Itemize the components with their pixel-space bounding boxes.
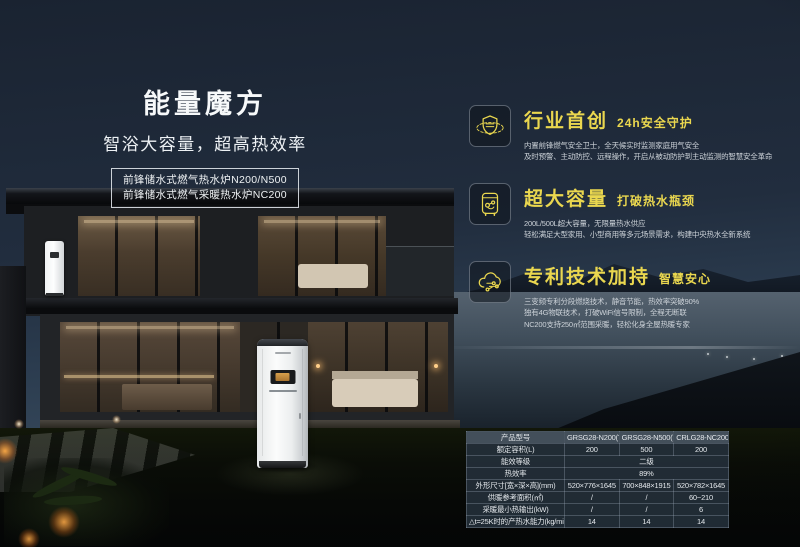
product-logo-mark bbox=[275, 352, 291, 354]
spec-value: 700×848×1915 bbox=[619, 480, 674, 492]
spec-value: 14 bbox=[619, 516, 674, 528]
mini-heater-base bbox=[46, 293, 63, 296]
window-upper-left bbox=[78, 216, 200, 296]
feature-text-line: 内置前锋燃气安全卫士，全天候实时监测家庭用气安全 bbox=[524, 140, 772, 151]
storage-tank-icon bbox=[469, 183, 511, 225]
spec-table: 产品型号 GRSG28-N200(T) GRSG28-N500(T) CRLG2… bbox=[466, 431, 729, 528]
window-lower-bedroom bbox=[308, 322, 448, 412]
spec-label: 外形尺寸[宽×深×高](mm) bbox=[467, 480, 565, 492]
feature-large-capacity: 超大容量 打破热水瓶颈 200L/500L超大容量，无限量热水供应 轻松满足大型… bbox=[469, 183, 750, 241]
spec-value: GRSG28-N500(T) bbox=[619, 432, 674, 444]
spec-row-efficiency: 热效率 89% bbox=[467, 468, 729, 480]
shore-light-dot bbox=[707, 353, 709, 355]
shield-orbit-icon bbox=[469, 105, 511, 147]
iot-cloud-icon bbox=[469, 261, 511, 303]
spec-label: 额定容积(L) bbox=[467, 444, 565, 456]
spec-value: GRSG28-N200(T) bbox=[565, 432, 620, 444]
product-base bbox=[259, 461, 306, 468]
feature-industry-first: 行业首创 24h安全守护 内置前锋燃气安全卫士，全天候实时监测家庭用气安全 及时… bbox=[469, 105, 772, 163]
spec-label: 供暖参考面积(㎡) bbox=[467, 492, 565, 504]
model-name-line: 前锋储水式燃气采暖热水炉NC200 bbox=[123, 188, 287, 203]
spec-value: 89% bbox=[565, 468, 729, 480]
feature-patent-tech: 专利技术加持 智慧安心 三变频专利分段燃烧技术，静音节能，热效率突破90% 独有… bbox=[469, 261, 711, 330]
feature-title: 行业首创 bbox=[524, 106, 608, 133]
product-body bbox=[257, 339, 308, 468]
path-light bbox=[14, 419, 24, 429]
window-kitchen bbox=[60, 322, 240, 412]
feature-text-line: 独有4G物联技术，打破WiFi信号限制，全程无断联 bbox=[524, 307, 711, 318]
poster-subtitle: 智浴大容量，超高热效率 bbox=[70, 130, 340, 155]
hero-block: 能量魔方 智浴大容量，超高热效率 前锋储水式燃气热水炉N200/N500 前锋储… bbox=[70, 82, 340, 208]
spec-row-model: 产品型号 GRSG28-N200(T) GRSG28-N500(T) CRLG2… bbox=[467, 432, 729, 444]
wall-hung-heater-unit bbox=[45, 241, 64, 296]
balcony-glass bbox=[386, 246, 454, 296]
door-latch bbox=[299, 413, 301, 419]
product-display bbox=[270, 370, 295, 384]
spec-label: 能效等级 bbox=[467, 456, 565, 468]
spec-value: / bbox=[619, 492, 674, 504]
spec-value: / bbox=[565, 492, 620, 504]
spec-value: / bbox=[565, 504, 620, 516]
feature-tagline: 24h安全守护 bbox=[617, 114, 693, 133]
left-wall bbox=[0, 266, 26, 432]
spec-row-energy-grade: 能效等级 二级 bbox=[467, 456, 729, 468]
poster: 能量魔方 智浴大容量，超高热效率 前锋储水式燃气热水炉N200/N500 前锋储… bbox=[0, 0, 800, 547]
window-upper-bedroom bbox=[258, 216, 386, 296]
spec-value: 520×782×1645 bbox=[674, 480, 729, 492]
spec-value: 二级 bbox=[565, 456, 729, 468]
path-light bbox=[112, 415, 121, 424]
mid-slab bbox=[24, 298, 458, 314]
floor-standing-water-heater bbox=[257, 339, 308, 468]
mini-heater-display bbox=[50, 252, 59, 258]
spec-value: 500 bbox=[619, 444, 674, 456]
far-shore-light-band bbox=[440, 346, 800, 349]
garden-light-glow bbox=[18, 528, 40, 547]
spec-value: 14 bbox=[674, 516, 729, 528]
model-name-line: 前锋储水式燃气热水炉N200/N500 bbox=[123, 173, 287, 188]
model-names-box: 前锋储水式燃气热水炉N200/N500 前锋储水式燃气采暖热水炉NC200 bbox=[111, 168, 299, 208]
spec-label: 采暖最小热输出(kW) bbox=[467, 504, 565, 516]
feature-text-line: 三变频专利分段燃烧技术，静音节能，热效率突破90% bbox=[524, 296, 711, 307]
shore-light-dot bbox=[726, 356, 728, 358]
panel-seam bbox=[302, 349, 303, 456]
spec-label: 产品型号 bbox=[467, 432, 565, 444]
feature-text-line: 200L/500L超大容量，无限量热水供应 bbox=[524, 218, 750, 229]
product-caption-text bbox=[269, 390, 297, 392]
spec-label: 热效率 bbox=[467, 468, 565, 480]
poster-title: 能量魔方 bbox=[70, 82, 340, 121]
spec-value: 520×776×1645 bbox=[565, 480, 620, 492]
house-photo bbox=[0, 188, 458, 432]
spec-row-hot-water-rate: △t=25K时的产热水能力(kg/min) 14 14 14 bbox=[467, 516, 729, 528]
garden-light-glow bbox=[48, 506, 80, 538]
spec-row-capacity: 额定容积(L) 200 500 200 bbox=[467, 444, 729, 456]
spec-row-min-output: 采暖最小热输出(kW) / / 6 bbox=[467, 504, 729, 516]
panel-seam bbox=[262, 349, 263, 456]
spec-value: 14 bbox=[565, 516, 620, 528]
spec-label: △t=25K时的产热水能力(kg/min) bbox=[467, 516, 565, 528]
feature-title: 专利技术加持 bbox=[524, 262, 650, 289]
spec-row-dimensions: 外形尺寸[宽×深×高](mm) 520×776×1645 700×848×191… bbox=[467, 480, 729, 492]
feature-text-line: 轻松满足大型家用、小型商用等多元场景需求，构建中央热水全新系统 bbox=[524, 229, 750, 240]
product-top-cap bbox=[257, 339, 308, 346]
feature-title: 超大容量 bbox=[524, 184, 608, 211]
spec-value: 200 bbox=[674, 444, 729, 456]
feature-text-line: NC200支持250㎡范围采暖，轻松化身全屋热暖专家 bbox=[524, 319, 711, 330]
shore-light-dot bbox=[781, 355, 783, 357]
shore-light-dot bbox=[753, 358, 755, 360]
spec-value: / bbox=[619, 504, 674, 516]
product-display-readout bbox=[276, 373, 290, 381]
spec-value: 60~210 bbox=[674, 492, 729, 504]
spec-value: 6 bbox=[674, 504, 729, 516]
spec-row-heating-area: 供暖参考面积(㎡) / / 60~210 bbox=[467, 492, 729, 504]
feature-tagline: 打破热水瓶颈 bbox=[617, 192, 695, 211]
feature-text-line: 及时预警、主动防控、远程操作，开启从被动防护到主动监测的智慧安全革命 bbox=[524, 151, 772, 162]
spec-value: CRLG28-NC200(T) bbox=[674, 432, 729, 444]
spec-value: 200 bbox=[565, 444, 620, 456]
feature-tagline: 智慧安心 bbox=[659, 270, 711, 289]
